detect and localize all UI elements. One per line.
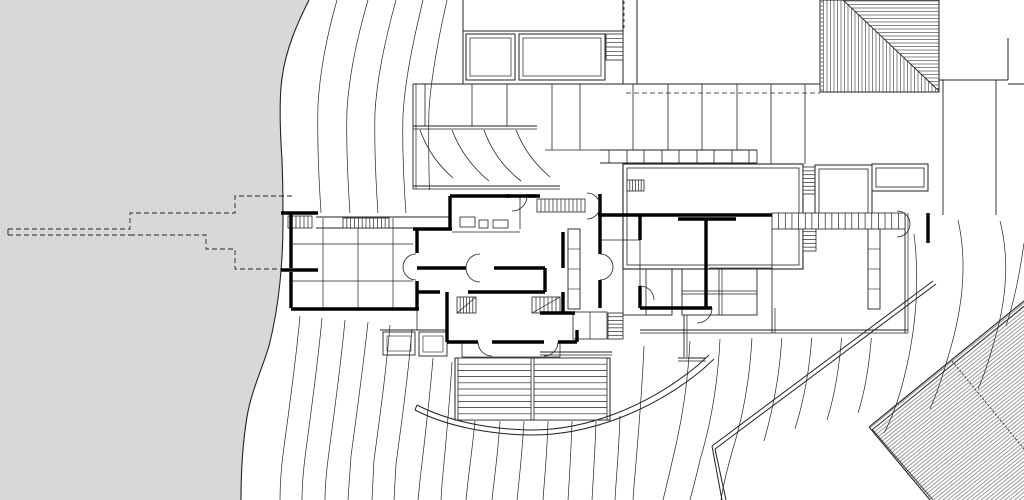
stairs (343, 218, 389, 228)
site-plan-canvas (0, 0, 1024, 500)
stairs (627, 180, 644, 191)
layer-hip-roof-square (820, 0, 939, 92)
stairs (534, 358, 607, 420)
stairs (772, 213, 905, 229)
stairs (803, 167, 816, 194)
layer-water-body (0, 0, 309, 500)
stairs (458, 358, 531, 420)
stairs (537, 199, 585, 212)
stairs (608, 313, 623, 339)
page: { "drawing": { "kind": "architectural-si… (0, 0, 1024, 500)
site-plan (0, 0, 1024, 500)
layer-garden-staircase (455, 358, 610, 420)
stairs (606, 34, 623, 60)
